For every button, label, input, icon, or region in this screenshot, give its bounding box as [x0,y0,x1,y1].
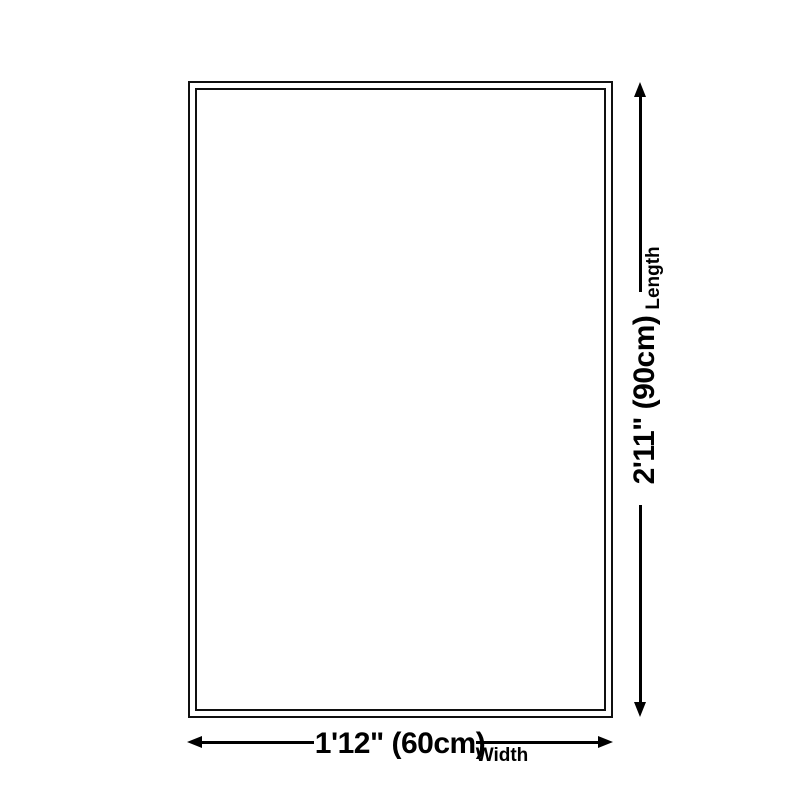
arrow-down-icon [634,702,646,717]
arrow-right-icon [598,736,613,748]
width-line-right-segment [476,741,599,744]
length-line-top-segment [639,95,642,292]
width-line-left-segment [201,741,314,744]
length-line-bottom-segment [639,505,642,703]
width-value: 1'12" (60cm) [315,727,485,761]
rug-inner-border [195,88,606,711]
size-diagram: Length 2'11" (90cm) 1'12" (60cm) Width [0,0,800,800]
length-label: Length [643,246,665,309]
rug-rectangle [188,81,613,718]
width-label: Width [476,745,529,767]
length-value: 2'11" (90cm) [628,316,662,485]
arrow-left-icon [187,736,202,748]
